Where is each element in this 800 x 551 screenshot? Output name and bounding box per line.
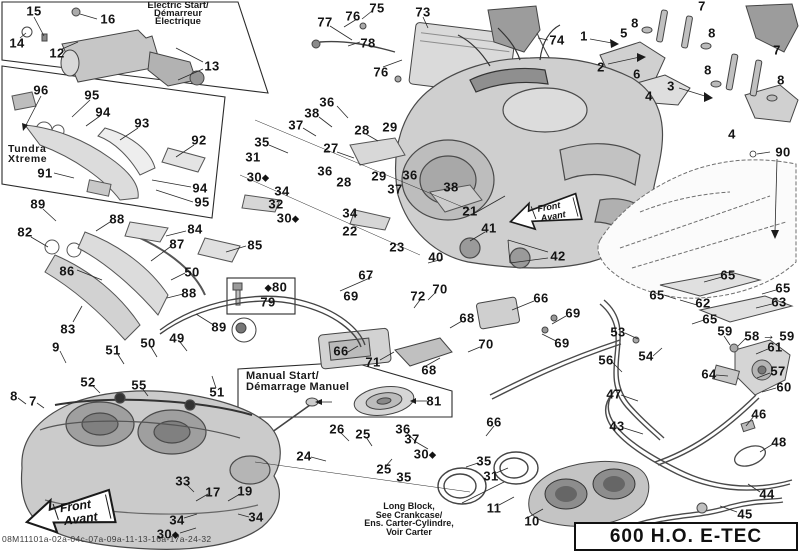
part-callout-69: 69	[343, 290, 358, 303]
part-callout-37: 37	[288, 119, 303, 132]
part-callout-46: 46	[751, 408, 766, 421]
part-callout-65: 65	[702, 313, 717, 326]
part-callout-50: 50	[184, 266, 199, 279]
part-callout-49: 49	[169, 332, 184, 345]
part-callout-45: 45	[737, 508, 752, 521]
part-callout-7: 7	[29, 395, 37, 408]
label-line: Manual Start/	[246, 371, 349, 382]
part-callout-71: 71	[365, 356, 380, 369]
part-callout-28: 28	[354, 124, 369, 137]
part-callout-52: 52	[80, 376, 95, 389]
part-callout-36: 36	[317, 165, 332, 178]
part-callout-89: 89	[30, 198, 45, 211]
part-callout-34: 34	[248, 511, 263, 524]
part-callout-66: 66	[533, 292, 548, 305]
part-callout-34: 34	[169, 514, 184, 527]
part-callout-81: 81	[426, 395, 441, 408]
part-callout-84: 84	[187, 223, 202, 236]
part-callout-65: 65	[720, 269, 735, 282]
part-callout-51: 51	[209, 386, 224, 399]
part-callout-4: 4	[645, 90, 653, 103]
part-callout-30: 30◆	[157, 528, 180, 541]
part-callout-82: 82	[17, 226, 32, 239]
part-callout-70: 70	[478, 338, 493, 351]
parts-diagram-canvas: Front Avant Front Avant Electric Start/ …	[0, 0, 800, 551]
part-callout-34: 34	[342, 207, 357, 220]
part-callout-62: 62	[695, 297, 710, 310]
part-callout-91: 91	[37, 167, 52, 180]
part-callout-61: 61	[767, 341, 782, 354]
part-callout-22: 22	[342, 225, 357, 238]
part-callout-32: 32	[268, 198, 283, 211]
part-callout-17: 17	[205, 486, 220, 499]
label-line: Électrique	[118, 18, 238, 26]
part-callout-8: 8	[631, 17, 639, 30]
part-callout-29: 29	[382, 121, 397, 134]
part-callout-94: 94	[95, 106, 110, 119]
part-callout-78: 78	[360, 37, 375, 50]
part-callout-80: ◆80	[265, 281, 288, 294]
part-callout-79: 79	[260, 296, 275, 309]
part-callout-88: 88	[109, 213, 124, 226]
part-callout-30: 30◆	[414, 448, 437, 461]
part-callout-89: 89	[211, 321, 226, 334]
part-callout-28: 28	[336, 176, 351, 189]
part-callout-67: 67	[358, 269, 373, 282]
part-callout-43: 43	[609, 420, 624, 433]
part-callout-88: 88	[181, 287, 196, 300]
part-callout-23: 23	[389, 241, 404, 254]
part-callout-41: 41	[481, 222, 496, 235]
part-callout-65: 65	[649, 289, 664, 302]
part-callout-92: 92	[191, 134, 206, 147]
part-callout-58: 58	[744, 330, 759, 343]
part-callout-95: 95	[84, 89, 99, 102]
part-callout-36: 36	[402, 169, 417, 182]
part-callout-9: 9	[52, 341, 60, 354]
part-callout-1: 1	[580, 30, 588, 43]
part-callout-30: 30◆	[247, 171, 270, 184]
part-callout-5: 5	[620, 27, 628, 40]
part-callout-6: 6	[633, 68, 641, 81]
label-line: Voir Carter	[336, 528, 482, 537]
part-callout-90: 90	[775, 146, 790, 159]
part-callout-8: 8	[704, 64, 712, 77]
part-callout-25: 25	[355, 428, 370, 441]
manual-start-label: Manual Start/ Démarrage Manuel	[246, 371, 349, 392]
part-callout-36: 36	[319, 96, 334, 109]
model-designation-box: 600 H.O. E-TEC	[574, 522, 798, 551]
part-callout-77: 77	[317, 16, 332, 29]
part-callout-96: 96	[33, 84, 48, 97]
part-callout-31: 31	[245, 151, 260, 164]
part-callout-35: 35	[476, 455, 491, 468]
part-callout-56: 56	[598, 354, 613, 367]
part-callout-35: 35	[396, 471, 411, 484]
part-callout-10: 10	[524, 515, 539, 528]
part-callout-19: 19	[237, 485, 252, 498]
part-callout-37: 37	[387, 183, 402, 196]
part-callout-59: 59	[717, 325, 732, 338]
part-callout-65: 65	[775, 282, 790, 295]
part-callout-2: 2	[597, 61, 605, 74]
part-callout-15: 15	[26, 5, 41, 18]
part-callout-85: 85	[247, 239, 262, 252]
part-callout-60: 60	[776, 381, 791, 394]
part-callout-25: 25	[376, 463, 391, 476]
part-callout-53: 53	[610, 326, 625, 339]
part-callout-48: 48	[771, 436, 786, 449]
part-callout-72: 72	[410, 290, 425, 303]
part-callout-40: 40	[428, 251, 443, 264]
part-callout-74: 74	[549, 34, 564, 47]
part-callout-76: 76	[373, 66, 388, 79]
long-block-note: Long Block, See Crankcase/ Ens. Carter-C…	[336, 502, 482, 536]
part-callout-69: 69	[565, 307, 580, 320]
part-callout-8: 8	[708, 27, 716, 40]
part-callout-93: 93	[134, 117, 149, 130]
part-callout-95: 95	[194, 196, 209, 209]
part-callout-94: 94	[192, 182, 207, 195]
spark-plug-illustration	[232, 283, 256, 342]
label-line: Xtreme	[8, 155, 47, 165]
part-callout-83: 83	[60, 323, 75, 336]
part-callout-38: 38	[304, 107, 319, 120]
part-callout-21: 21	[462, 205, 477, 218]
part-callout-42: 42	[550, 250, 565, 263]
part-callout-29: 29	[371, 170, 386, 183]
part-callout-70: 70	[432, 283, 447, 296]
part-callout-87: 87	[169, 238, 184, 251]
part-callout-27: 27	[323, 142, 338, 155]
electric-start-label: Electric Start/ Démarreur Électrique	[118, 2, 238, 26]
part-callout-66: 66	[333, 345, 348, 358]
part-callout-57: 57	[770, 365, 785, 378]
part-callout-24: 24	[296, 450, 311, 463]
part-callout-35: 35	[254, 136, 269, 149]
part-callout-30: 30◆	[277, 212, 300, 225]
part-callout-8: 8	[10, 390, 18, 403]
part-callout-86: 86	[59, 265, 74, 278]
part-callout-37: 37	[404, 433, 419, 446]
part-callout-7: 7	[773, 44, 781, 57]
part-callout-13: 13	[204, 60, 219, 73]
part-callout-12: 12	[49, 47, 64, 60]
tundra-xtreme-label: Tundra Xtreme	[8, 145, 47, 164]
part-callout-26: 26	[329, 423, 344, 436]
part-callout-69: 69	[554, 337, 569, 350]
part-callout-51: 51	[105, 344, 120, 357]
part-callout-11: 11	[487, 502, 502, 515]
part-callout-44: 44	[759, 488, 774, 501]
part-callout-68: 68	[421, 364, 436, 377]
label-line: Démarrage Manuel	[246, 382, 349, 393]
part-callout-63: 63	[771, 296, 786, 309]
part-callout-50: 50	[140, 337, 155, 350]
part-callout-47: 47	[606, 388, 621, 401]
part-callout-38: 38	[443, 181, 458, 194]
part-callout-4: 4	[728, 128, 736, 141]
part-callout-54: 54	[638, 350, 653, 363]
part-callout-76: 76	[345, 10, 360, 23]
part-callout-3: 3	[667, 80, 675, 93]
part-callout-66: 66	[486, 416, 501, 429]
part-callout-64: 64	[701, 368, 716, 381]
diagram-artwork	[0, 0, 800, 551]
part-callout-75: 75	[369, 2, 384, 15]
part-callout-7: 7	[698, 0, 706, 13]
part-callout-8: 8	[777, 74, 785, 87]
part-callout-73: 73	[415, 6, 430, 19]
part-callout-33: 33	[175, 475, 190, 488]
part-callout-14: 14	[9, 37, 24, 50]
part-callout-16: 16	[100, 13, 115, 26]
part-callout-68: 68	[459, 312, 474, 325]
catalog-code: 08M11101a-02a-04c-07a-09a-11-13-16a-17a-…	[2, 534, 212, 544]
part-callout-31: 31	[483, 470, 498, 483]
part-callout-55: 55	[131, 379, 146, 392]
